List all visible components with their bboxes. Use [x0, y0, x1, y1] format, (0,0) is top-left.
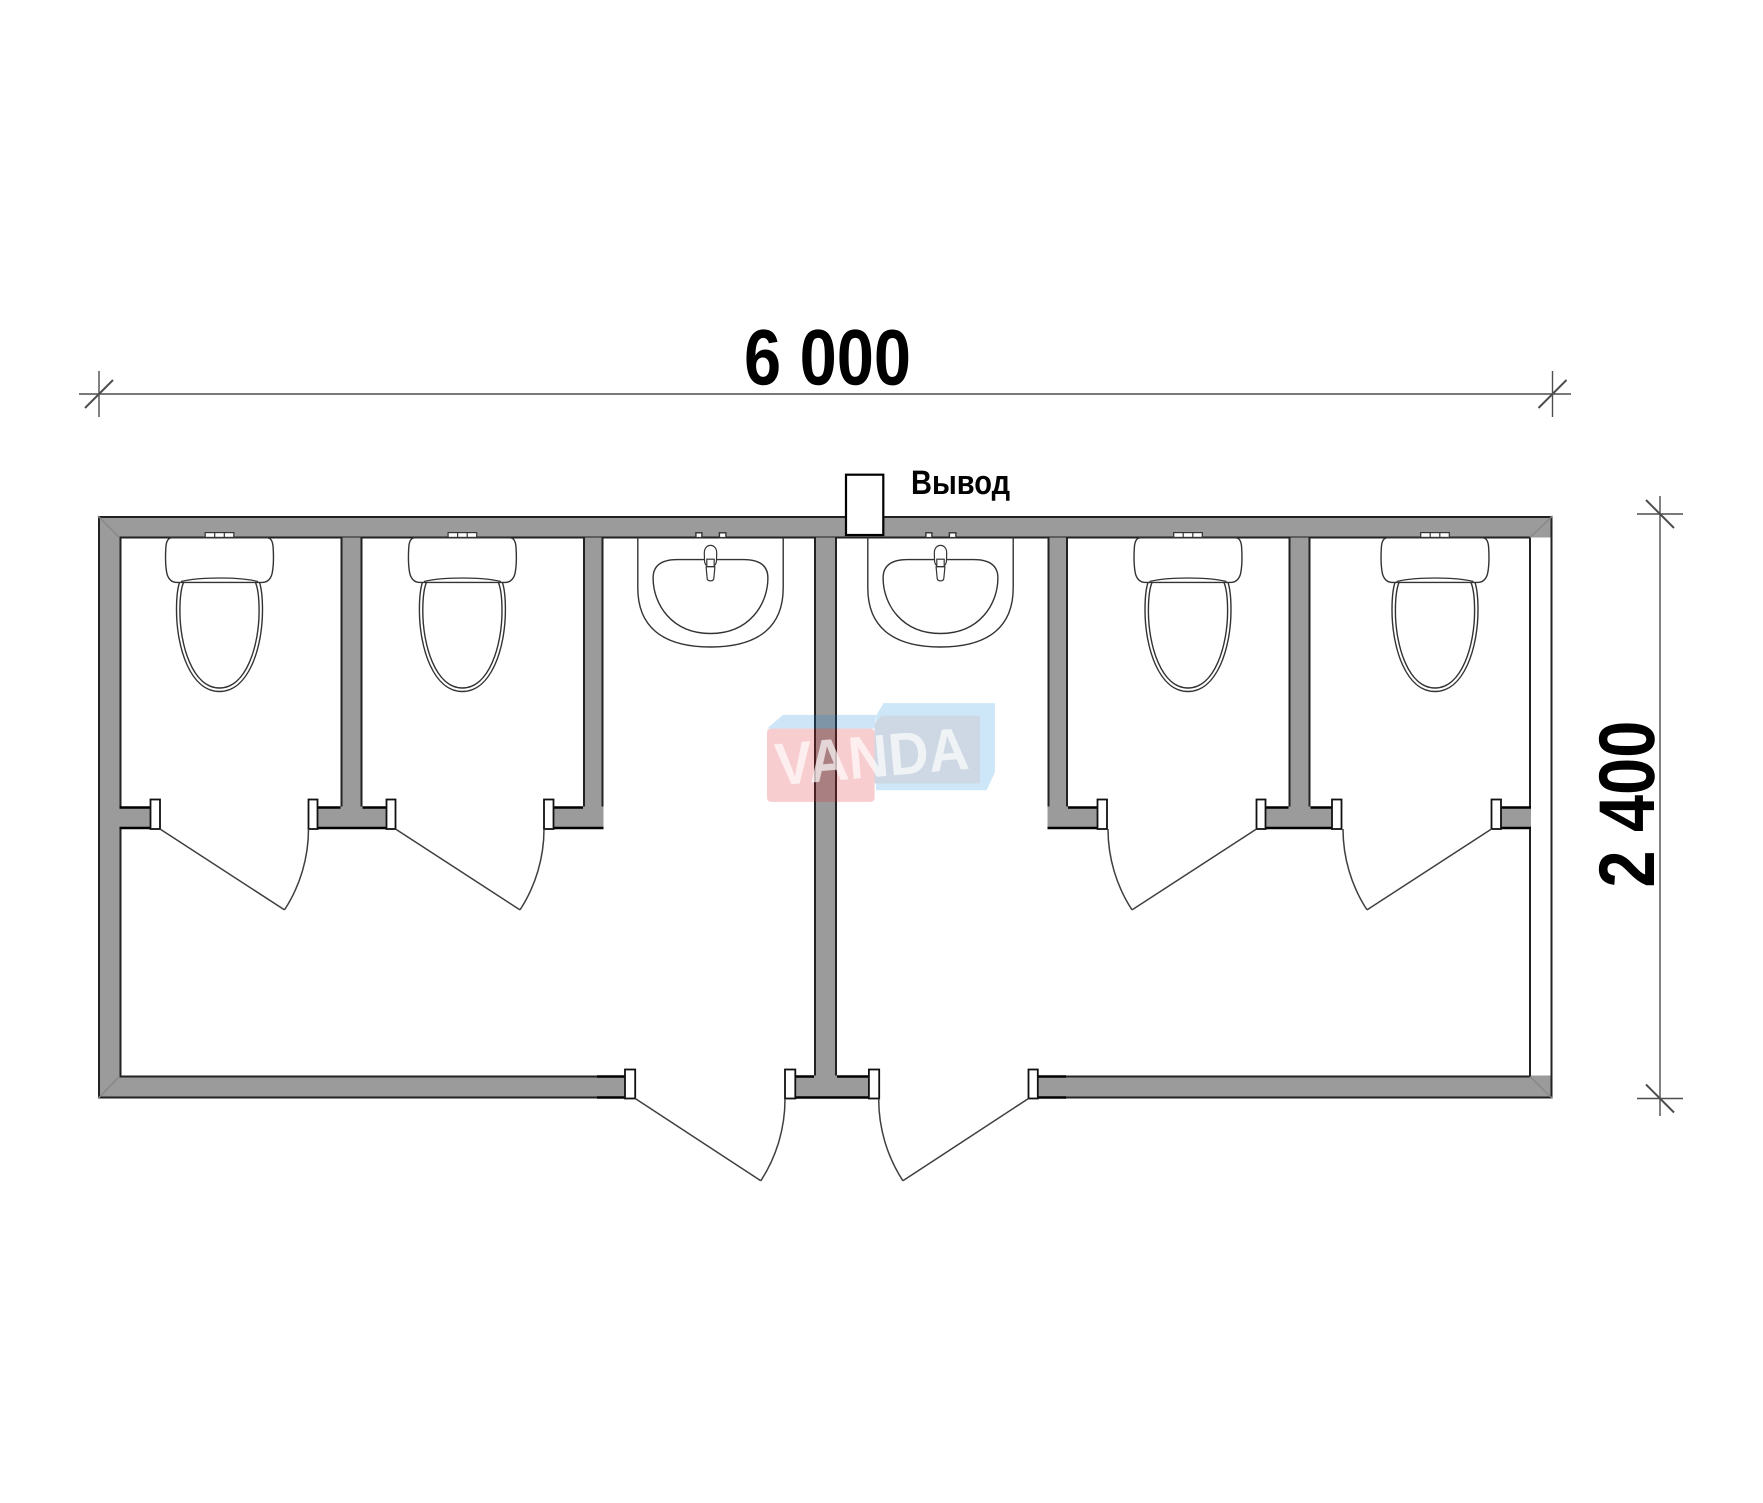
svg-text:Вывод: Вывод [911, 464, 1010, 502]
svg-text:6 000: 6 000 [744, 313, 911, 402]
svg-text:2 400: 2 400 [1582, 721, 1671, 888]
